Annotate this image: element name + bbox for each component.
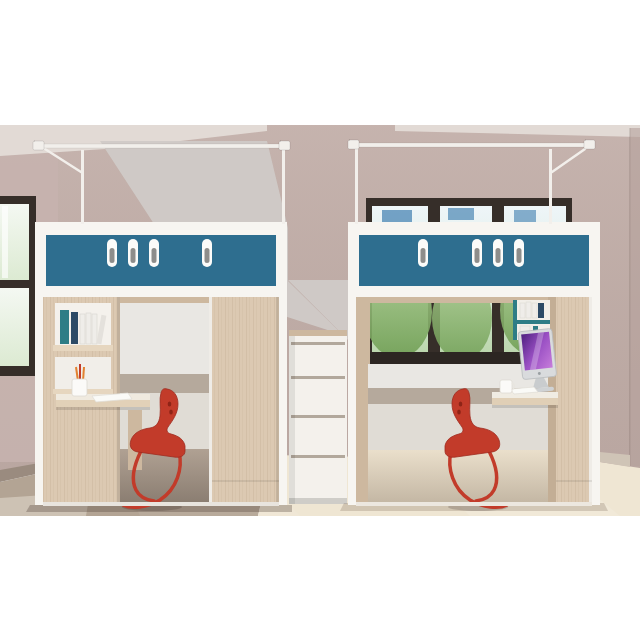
- vent-slot-handle: [131, 248, 136, 263]
- chair-back-hole: [457, 409, 461, 414]
- bottom-margin: [0, 516, 640, 640]
- vent-slot-handle: [205, 248, 210, 263]
- rack-end-cap: [348, 140, 359, 149]
- left-frame-post-left: [35, 222, 43, 505]
- vent-slot-handle: [110, 248, 115, 263]
- stair-side-shadow: [289, 336, 295, 504]
- wardrobe-left-grain: [212, 297, 279, 505]
- left-frame-post-right: [279, 222, 287, 505]
- book-navy: [71, 312, 78, 344]
- left-desk-shadow: [56, 407, 150, 410]
- right-wall-face: [630, 128, 640, 466]
- right-frame-post-right: [592, 222, 600, 505]
- right-tower-seam: [556, 480, 592, 482]
- right-interior-side: [356, 297, 370, 505]
- rack-pole: [282, 150, 285, 224]
- wardrobe-left-seam: [212, 480, 279, 482]
- book-white: [526, 302, 531, 318]
- stair-top-edge: [289, 330, 347, 336]
- wardrobe-left-white-edge: [209, 297, 212, 505]
- book-binder-teal: [60, 310, 69, 344]
- chair-back-hole: [169, 409, 173, 414]
- top-margin: [0, 0, 640, 125]
- stair-step-gap: [291, 455, 345, 458]
- book-white: [80, 314, 85, 344]
- rack-end-cap: [279, 141, 290, 150]
- book-white: [520, 303, 525, 318]
- right-frame-bottom-beam: [356, 289, 592, 297]
- book-white: [532, 303, 537, 318]
- mug: [500, 380, 512, 393]
- stair-step-gap: [291, 342, 345, 345]
- bed-guard-panel-left: [46, 235, 276, 286]
- vent-slot-handle: [152, 248, 157, 263]
- book-white: [92, 314, 97, 344]
- stair-step-gap: [291, 376, 345, 379]
- vent-slot-handle: [517, 248, 522, 263]
- book-navy: [538, 303, 544, 318]
- vent-slot-handle: [475, 248, 480, 263]
- window-building-1: [382, 210, 412, 223]
- right-desk-edge: [492, 398, 558, 405]
- left-frame-top-beam: [35, 222, 287, 232]
- stair-kick-shadow: [289, 498, 347, 504]
- left-window-rail: [0, 280, 29, 288]
- stair-step-gap: [291, 415, 345, 418]
- left-base-kick: [43, 502, 279, 506]
- loft-bed-left: [35, 222, 287, 511]
- vent-slot-handle: [496, 248, 501, 263]
- pencil-cup-body: [72, 379, 87, 396]
- right-tower-grain: [556, 297, 592, 505]
- left-window-glass-bottom: [0, 288, 29, 366]
- left-frame-bottom-beam: [43, 289, 279, 297]
- right-tower-white-edge: [589, 297, 592, 505]
- loft-bed-right: [348, 222, 600, 511]
- wardrobe-left: [209, 297, 279, 505]
- left-window: [0, 196, 36, 376]
- rack-end-cap: [584, 140, 595, 149]
- right-desk-shadow: [492, 405, 558, 408]
- stair-front: [289, 336, 347, 504]
- right-shelf-board: [513, 320, 550, 324]
- rack-pole: [549, 149, 552, 224]
- right-base-kick: [356, 502, 592, 506]
- stair-drawers: [289, 330, 347, 504]
- chair-back-hole: [459, 401, 463, 406]
- rack-bar: [40, 144, 286, 148]
- shelf-board-left: [53, 345, 113, 351]
- window-building-2: [448, 208, 474, 220]
- chair-back-hole: [168, 401, 172, 406]
- rack-pole: [81, 150, 84, 224]
- right-frame-post-left: [348, 222, 356, 505]
- right-frame-top-beam: [348, 222, 600, 232]
- rack-pole: [355, 149, 358, 224]
- wardrobe-left-edge-shadow: [276, 297, 279, 505]
- left-window-glare: [2, 206, 8, 278]
- rack-bar: [352, 143, 590, 147]
- vent-slot-handle: [421, 248, 426, 263]
- product-photo: Two loft beds with under-bed study desks…: [0, 0, 640, 640]
- book-white: [86, 313, 91, 344]
- window-building-3: [514, 210, 536, 222]
- rack-end-cap: [33, 141, 44, 150]
